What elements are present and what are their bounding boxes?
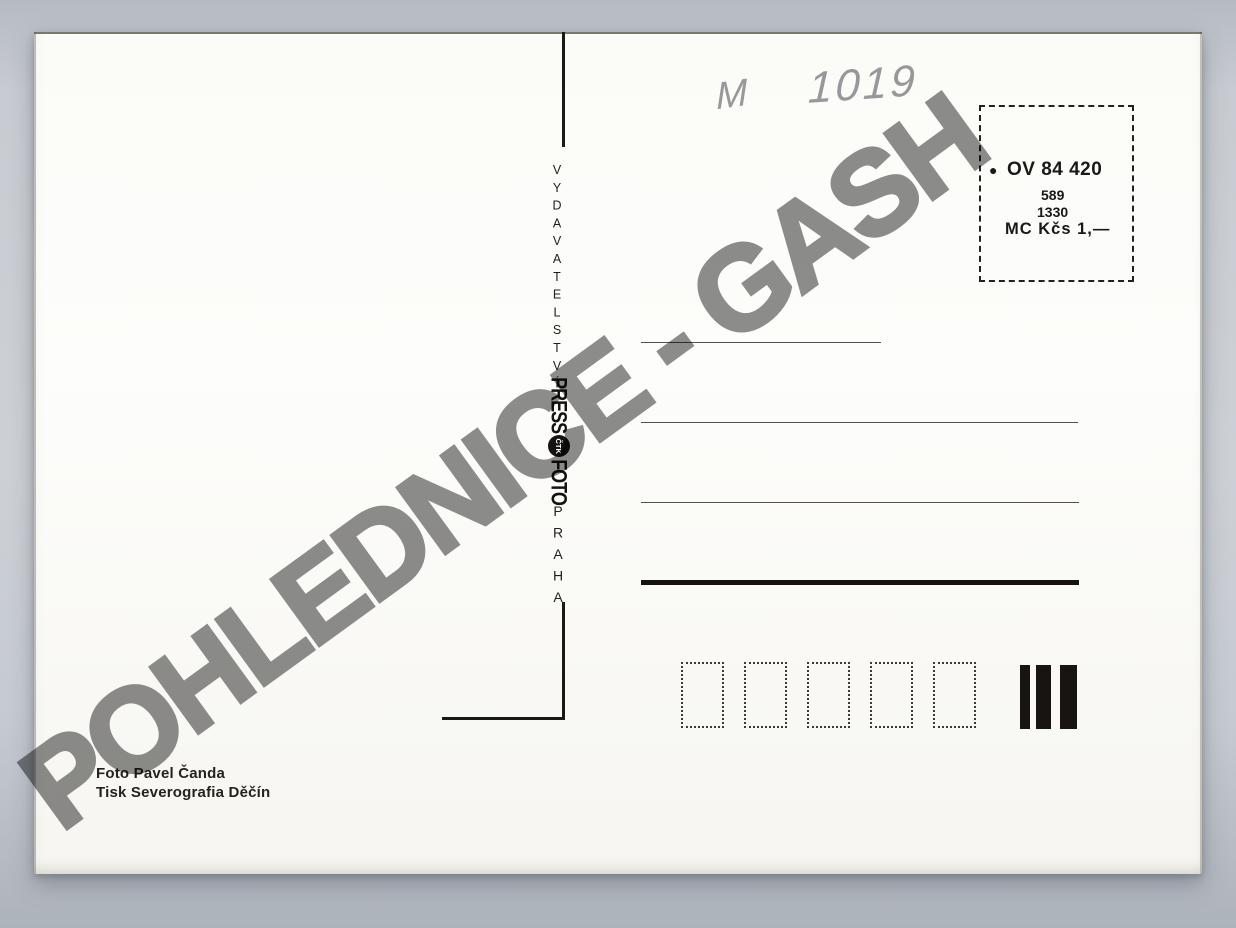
bullet-dot-icon: ● — [989, 163, 998, 177]
stamp-price: MC Kčs 1,— — [1005, 220, 1110, 239]
publisher-vertical-text: VYDAVATELSTVÍ — [550, 163, 564, 394]
sorting-bar — [1060, 665, 1077, 729]
stamp-code: OV 84 420 — [1007, 159, 1102, 181]
postal-code-box — [870, 662, 913, 728]
publisher-city-text: PRAHA — [550, 503, 566, 611]
postal-code-box — [681, 662, 724, 728]
print-credits: Foto Pavel Čanda Tisk Severografia Děčín — [96, 765, 270, 802]
stamp-code-row: ● OV 84 420 — [989, 159, 1102, 181]
divider-top-rule — [562, 32, 565, 147]
divider-foot-rule — [442, 717, 565, 720]
stamp-edition: 589 — [1041, 187, 1064, 203]
address-line-1 — [641, 342, 881, 343]
stamp-placement-box: ● OV 84 420 589 1330 MC Kčs 1,— — [979, 105, 1134, 282]
postal-code-box — [807, 662, 850, 728]
ctk-globe-emblem-icon: ČTK — [548, 435, 570, 457]
address-line-2 — [641, 422, 1078, 423]
logo-press-text: PRESS — [546, 377, 572, 433]
address-line-thick — [641, 580, 1079, 585]
handwritten-number: 1019 — [807, 56, 918, 114]
sorting-bar — [1020, 665, 1030, 729]
address-line-3 — [641, 502, 1079, 503]
seller-watermark: POHLEDNICE - GASH — [0, 72, 1008, 854]
pressfoto-logo: PRESS ČTK FOTO — [546, 382, 572, 500]
postal-code-box — [933, 662, 976, 728]
sorting-bar — [1036, 665, 1051, 729]
handwritten-letter: M — [715, 72, 748, 120]
postcard-back: VYDAVATELSTVÍ PRESS ČTK FOTO PRAHA M 101… — [34, 32, 1202, 874]
logo-foto-text: FOTO — [546, 459, 572, 505]
divider-bottom-rule — [562, 602, 565, 719]
photo-credit: Foto Pavel Čanda — [96, 765, 270, 784]
postal-code-box — [744, 662, 787, 728]
stamp-number: 1330 — [1037, 204, 1068, 220]
printer-credit: Tisk Severografia Děčín — [96, 784, 270, 803]
